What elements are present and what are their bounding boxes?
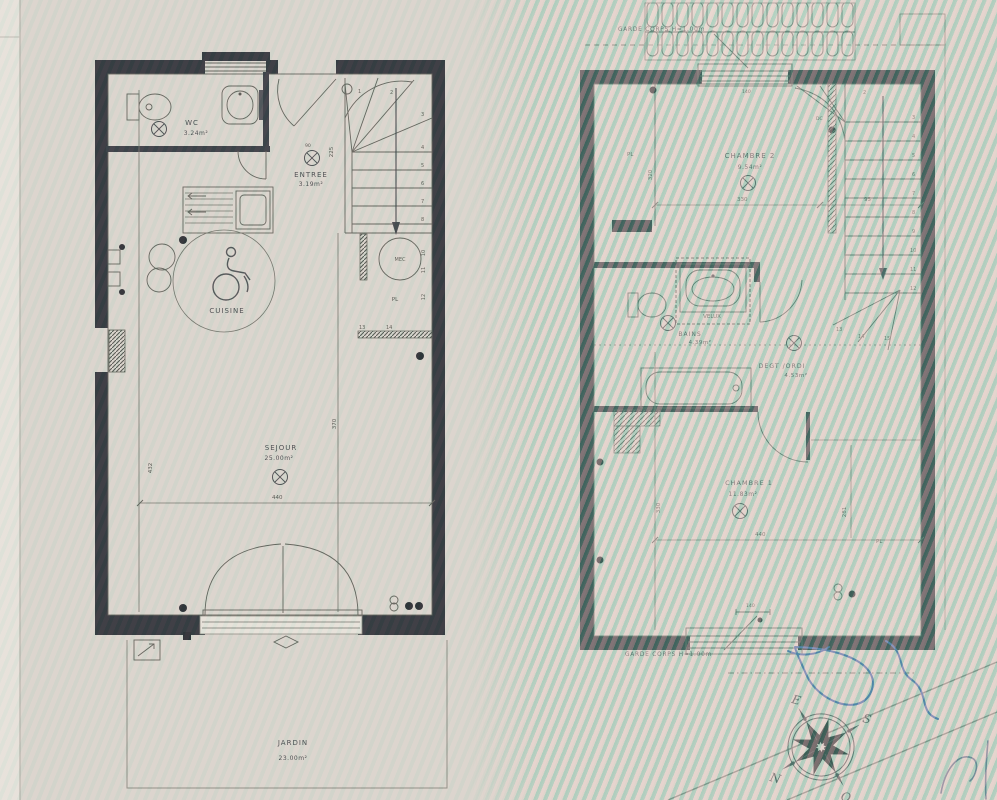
- chambre2: CHAMBRE 2 9.54m² 330 95 320 PL DC: [612, 84, 924, 232]
- pl-bottom-label: PL: [876, 539, 883, 545]
- wc-label: WC: [185, 119, 199, 127]
- ceiling-light-icon: [273, 470, 288, 485]
- ceiling-light-icon: [733, 504, 748, 519]
- ceiling-light-icon: [152, 122, 167, 137]
- step-number: 1: [358, 89, 361, 95]
- dim-320: 320: [648, 169, 654, 180]
- floor-plan-drawing: WC 3.24m² ENTREE 3.19m² 225 90: [0, 0, 997, 800]
- step-number: 7: [421, 199, 424, 205]
- marker-dot: [416, 352, 424, 360]
- dim-140-bottom: 140: [746, 603, 755, 609]
- outlet-symbols: [834, 584, 856, 600]
- hob-icon: [147, 268, 171, 292]
- chambre1-area: 11.83m²: [729, 491, 758, 498]
- wc-door-arc: [238, 151, 266, 179]
- staircase-upper: 2 3 4 5 6 7 8 9 10 11 12 13 14 15: [795, 84, 921, 350]
- dim-140: 140: [742, 89, 751, 95]
- accessibility-turning-circle: [173, 230, 275, 332]
- side-number: 10: [421, 250, 427, 256]
- diamond-marker: [274, 636, 298, 648]
- compass-north: N: [768, 770, 783, 787]
- degt-area: 4.53m²: [784, 372, 807, 379]
- marker-dot: [597, 557, 604, 564]
- compass-south: S: [861, 711, 873, 727]
- jardin-area: 23.00m²: [279, 755, 308, 762]
- dim-330-left: 330: [656, 502, 662, 513]
- step-number: 12: [910, 286, 916, 292]
- compass-east: E: [789, 692, 802, 708]
- inner-wall-face: [108, 74, 432, 615]
- marker-dot: [179, 604, 187, 612]
- step-number: 14: [858, 334, 864, 340]
- compass-west: O: [839, 789, 852, 800]
- window-left: [109, 330, 125, 372]
- chambre1-door-arc: [758, 412, 808, 462]
- toilet-icon: [628, 293, 666, 317]
- washbasin-icon: [680, 264, 746, 312]
- velux-label: VELUX: [703, 314, 721, 320]
- ceiling-light-icon: [787, 336, 802, 351]
- washbasin-icon: [222, 86, 258, 124]
- side-number: 14: [386, 325, 392, 331]
- step-number: 3: [421, 112, 424, 118]
- step-number: 7: [912, 191, 915, 197]
- entree-label: ENTREE: [294, 171, 328, 179]
- jardin-label: JARDIN: [277, 739, 308, 747]
- page-frame: [0, 0, 20, 800]
- bains-label: BAINS: [678, 331, 701, 338]
- step-number: 10: [910, 248, 916, 254]
- chambre2-area: 9.54m²: [738, 164, 763, 171]
- dim-370: 370: [332, 418, 338, 429]
- step-number: 2: [390, 90, 393, 96]
- step-number: 5: [912, 153, 915, 159]
- step-number: 6: [912, 172, 915, 178]
- jardin: JARDIN 23.00m²: [127, 640, 447, 788]
- entry-door-arc: [278, 79, 294, 126]
- sejour-area: 25.00m²: [265, 455, 294, 462]
- side-number: 13: [359, 325, 365, 331]
- window-top: [205, 63, 266, 71]
- step-number: 4: [912, 134, 915, 140]
- chambre2-label: CHAMBRE 2: [725, 152, 776, 160]
- step-number: 9: [912, 229, 915, 235]
- entree: ENTREE 3.19m² 225 90: [278, 79, 336, 188]
- kitchen: CUISINE: [108, 187, 275, 332]
- degt-label: DEGT /ORDI: [759, 363, 806, 370]
- arrow-icon: [188, 193, 206, 199]
- cuisine-label: CUISINE: [209, 307, 244, 315]
- exterior-walls: [95, 52, 445, 635]
- window-top-upper: 140: [698, 64, 792, 95]
- balcony-railing: GARDE CORPS H=1.00m: [618, 3, 855, 68]
- step-number: 5: [421, 163, 424, 169]
- arrow-icon: [188, 209, 206, 215]
- compass-rose: E S N O: [768, 692, 874, 800]
- terrace-slab: [200, 616, 362, 634]
- outlet-symbols: [390, 596, 423, 611]
- bath-door-arc: [760, 280, 802, 322]
- ceiling-light-icon: [741, 176, 756, 191]
- pen-signature: [788, 641, 988, 799]
- step-number: 11: [910, 267, 916, 273]
- stair-partition: [828, 84, 836, 233]
- step-number: 13: [836, 327, 842, 333]
- marker-dot: [650, 87, 657, 94]
- chambre1-label: CHAMBRE 1: [725, 479, 773, 487]
- dim-440: 440: [272, 495, 283, 501]
- mec-closet: MEC PL 10 11 12 13 14: [358, 234, 432, 338]
- upper-floor-plan: GARDE CORPS H=1.00m 140: [580, 3, 945, 658]
- wheelchair-icon: [213, 248, 250, 301]
- entry-door-leaf: [294, 79, 336, 126]
- duct: [259, 90, 269, 120]
- sejour-label: SEJOUR: [265, 444, 297, 452]
- wc-partition: [108, 148, 268, 150]
- dim-330: 330: [737, 197, 748, 203]
- step-number: 8: [421, 217, 424, 223]
- step-number: 8: [912, 210, 915, 216]
- bathtub-icon: [641, 368, 751, 408]
- ground-floor-plan: WC 3.24m² ENTREE 3.19m² 225 90: [95, 52, 447, 788]
- hob-icon: [149, 244, 175, 270]
- degagement: DEGT /ORDI 4.53m²: [594, 336, 921, 463]
- ceiling-light-icon: [661, 316, 676, 331]
- pl-top-label: PL: [627, 152, 634, 158]
- pl-label: PL: [392, 297, 399, 303]
- mec-label: MEC: [395, 257, 406, 263]
- gutter-symbol: [134, 640, 160, 660]
- sejour: SEJOUR 25.00m² 440 432 370: [137, 90, 435, 640]
- chambre1: CHAMBRE 1 11.83m² 440 281 330 PL: [597, 352, 925, 630]
- scanned-floor-plan-photo: WC 3.24m² ENTREE 3.19m² 225 90: [0, 0, 997, 800]
- side-number: 11: [421, 267, 427, 273]
- dim-440-upper: 440: [755, 532, 766, 538]
- step-number: 2: [863, 90, 866, 96]
- toilet-icon: [127, 94, 171, 120]
- step-number: 3: [912, 115, 915, 121]
- wc-room: WC 3.24m²: [108, 74, 269, 179]
- garde-corps-top-label: GARDE CORPS H=1.00m: [618, 27, 705, 33]
- entree-area: 3.19m²: [299, 181, 324, 188]
- leader-line: [724, 616, 757, 650]
- marker-square: [183, 632, 191, 640]
- dc-label: DC: [816, 116, 823, 122]
- dim-90: 90: [305, 143, 311, 149]
- marker-dot: [597, 459, 604, 466]
- garde-corps-bottom-label: GARDE CORPS H=1.00m: [625, 652, 712, 658]
- ceiling-light-icon: [305, 151, 320, 166]
- dim-432: 432: [148, 463, 154, 474]
- step-number: 15: [884, 336, 890, 342]
- site-boundary-lines: [668, 662, 997, 800]
- wc-area: 3.24m²: [184, 130, 209, 137]
- marker-dot: [179, 236, 187, 244]
- kitchen-counter: [183, 187, 273, 233]
- bathroom: VELUX BAINS 4.39m²: [594, 258, 802, 453]
- dim-225: 225: [329, 146, 335, 157]
- step-number: 6: [421, 181, 424, 187]
- step-number: 4: [421, 145, 424, 151]
- sink-icon: [236, 191, 270, 229]
- side-number: 12: [421, 294, 427, 300]
- staircase-gf: 1 2 3 4 5 6 7 8: [342, 78, 432, 235]
- dim-281: 281: [842, 507, 848, 518]
